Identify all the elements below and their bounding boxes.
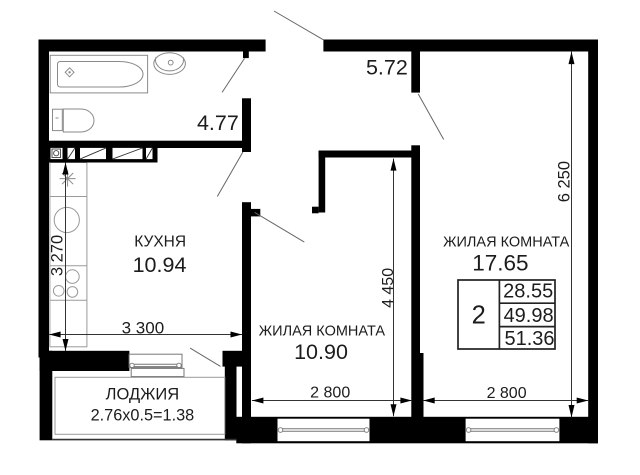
svg-text:ЛОДЖИЯ: ЛОДЖИЯ [106, 385, 180, 403]
svg-text:17.65: 17.65 [472, 250, 528, 275]
svg-text:28.55: 28.55 [503, 281, 553, 303]
svg-text:3 270: 3 270 [49, 235, 67, 276]
svg-text:2 800: 2 800 [487, 385, 527, 402]
svg-text:ЖИЛАЯ КОМНАТА: ЖИЛАЯ КОМНАТА [259, 324, 386, 340]
svg-text:4.77: 4.77 [197, 111, 239, 135]
svg-text:10.94: 10.94 [133, 253, 187, 277]
svg-text:ЖИЛАЯ КОМНАТА: ЖИЛАЯ КОМНАТА [443, 234, 570, 250]
svg-text:3 300: 3 300 [122, 319, 165, 338]
svg-text:КУХНЯ: КУХНЯ [134, 233, 186, 250]
svg-text:4 450: 4 450 [380, 268, 397, 308]
svg-text:2.76х0.5=1.38: 2.76х0.5=1.38 [91, 407, 195, 425]
svg-text:49.98: 49.98 [504, 305, 554, 327]
svg-text:5.72: 5.72 [366, 56, 408, 80]
svg-text:2 800: 2 800 [310, 384, 350, 401]
svg-text:10.90: 10.90 [294, 340, 348, 364]
svg-text:51.36: 51.36 [504, 328, 554, 350]
svg-text:2: 2 [472, 302, 486, 330]
svg-text:6 250: 6 250 [555, 161, 573, 202]
